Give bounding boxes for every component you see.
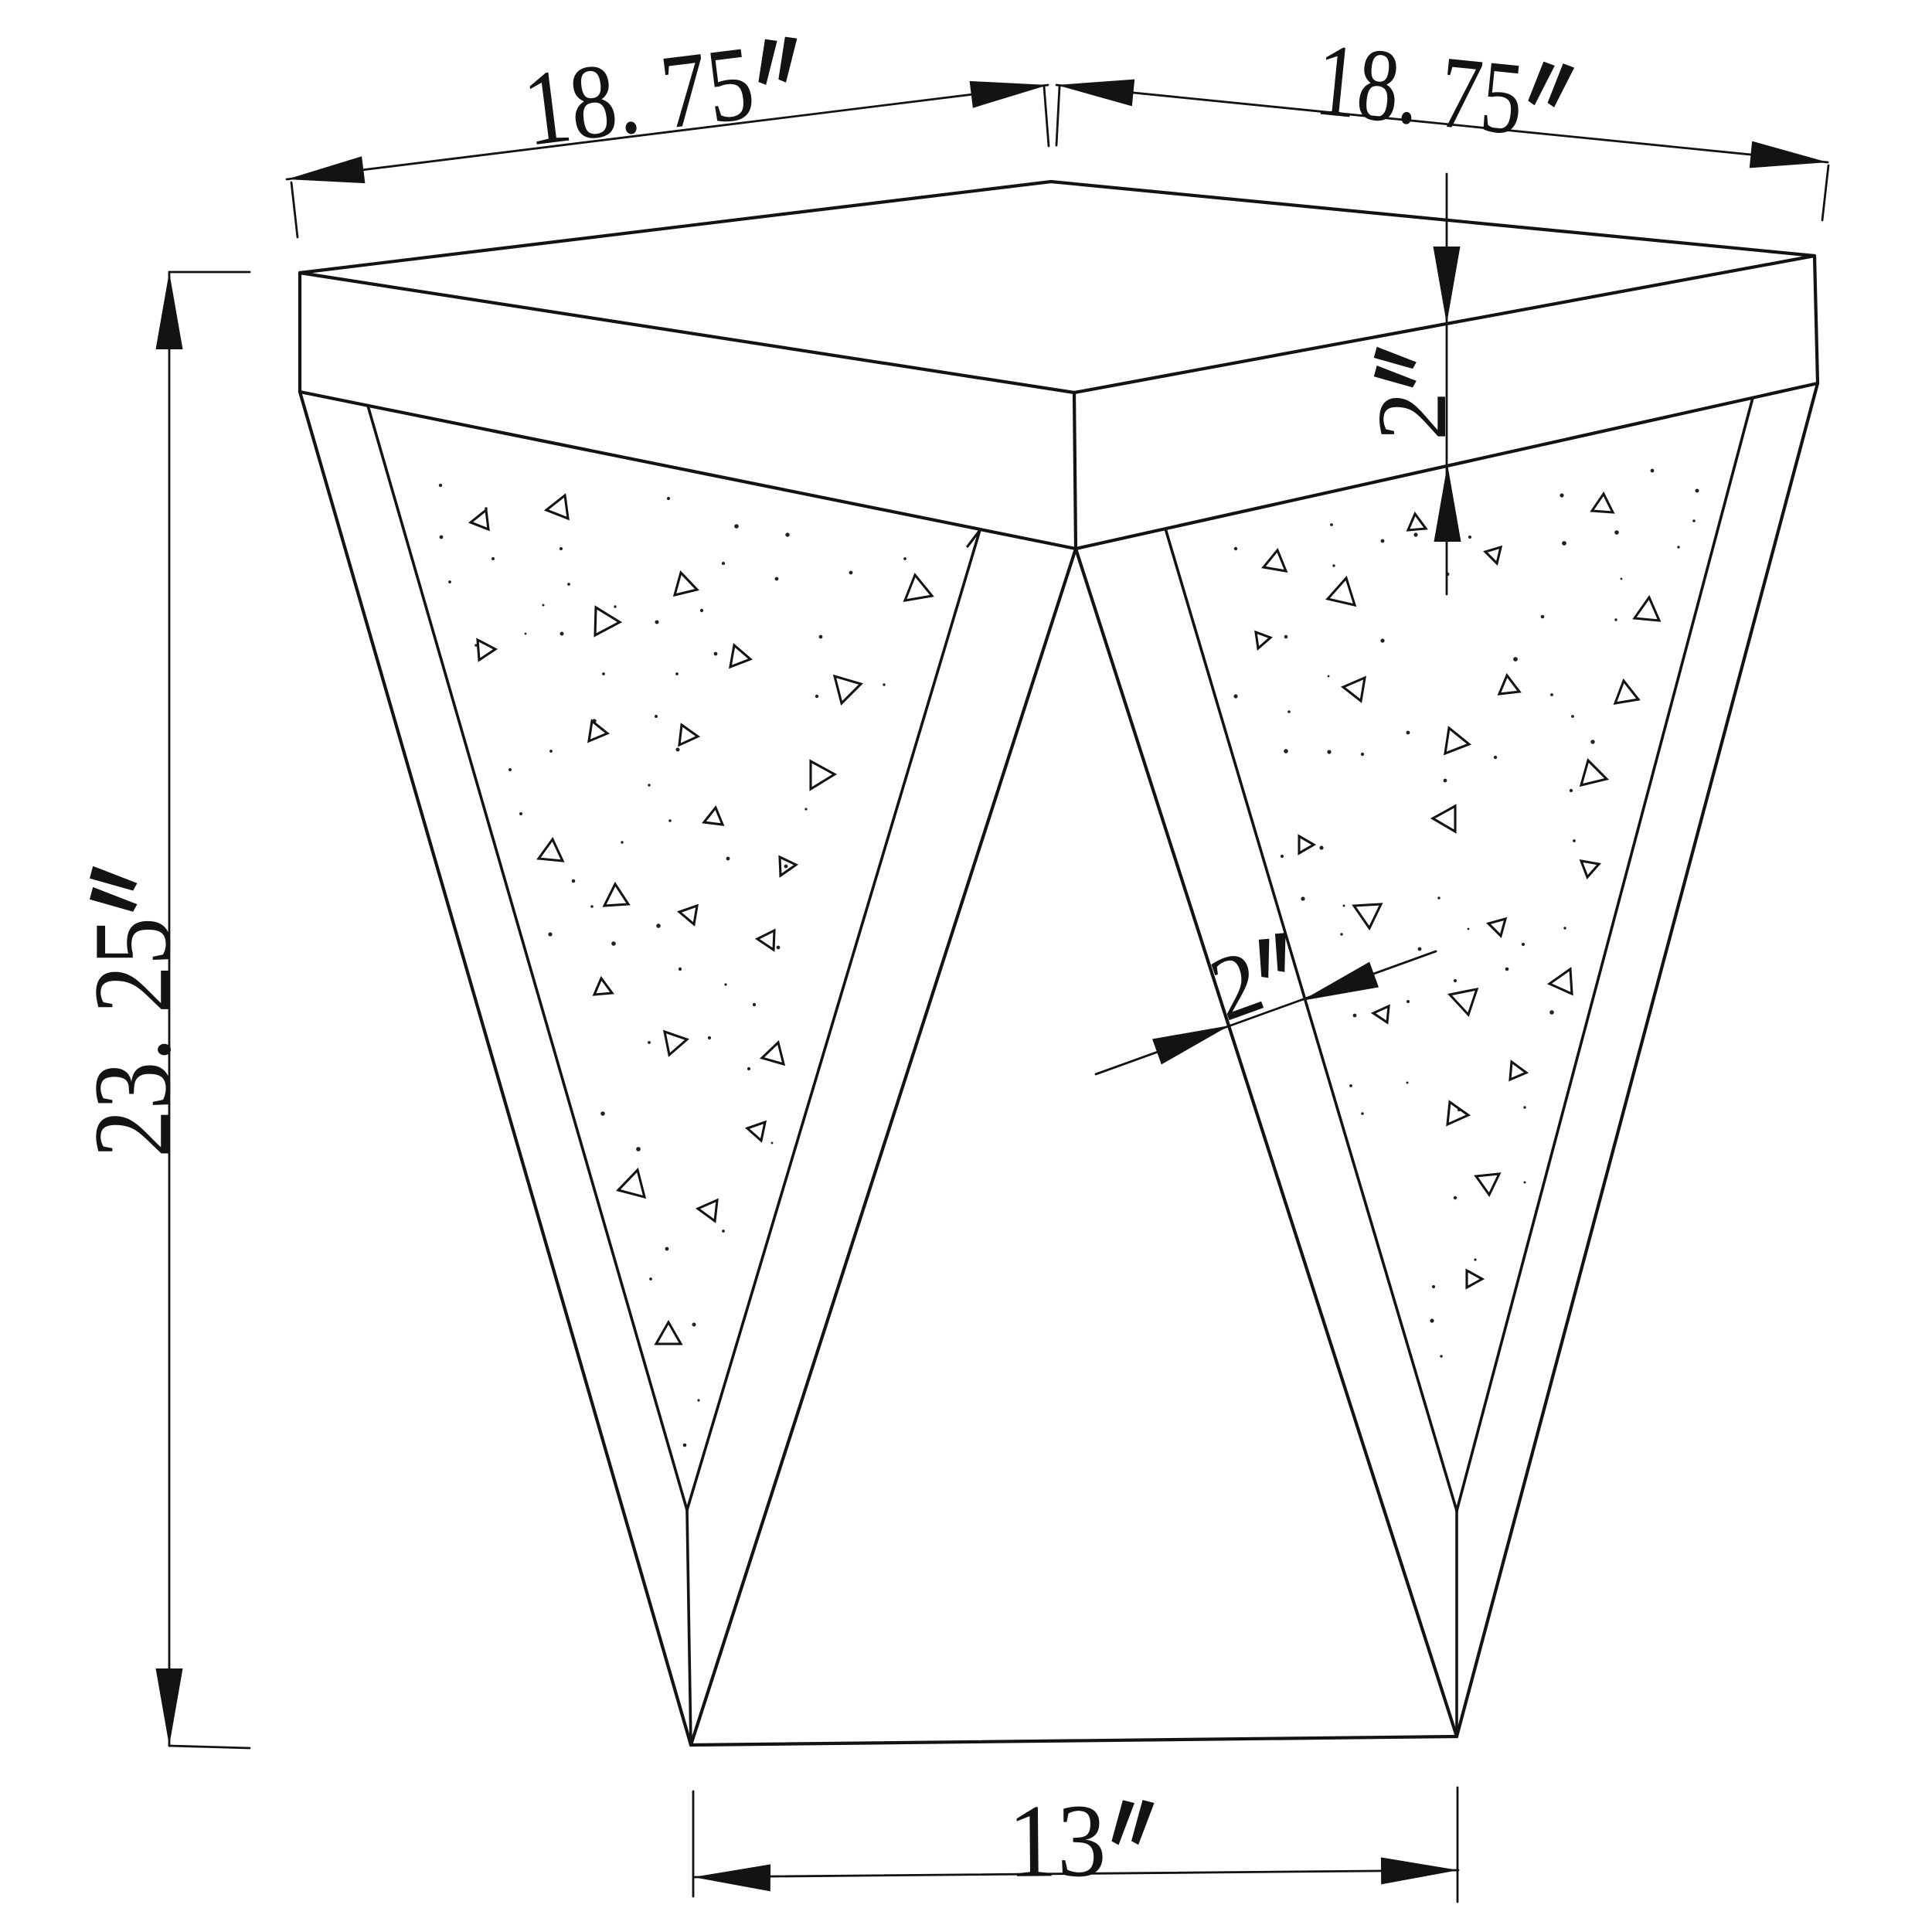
- svg-text:2: 2: [1357, 391, 1467, 440]
- svg-text:18. 75: 18. 75: [1311, 22, 1528, 157]
- svg-text:13: 13: [1008, 1783, 1107, 1900]
- svg-text:23. 25: 23. 25: [71, 917, 193, 1158]
